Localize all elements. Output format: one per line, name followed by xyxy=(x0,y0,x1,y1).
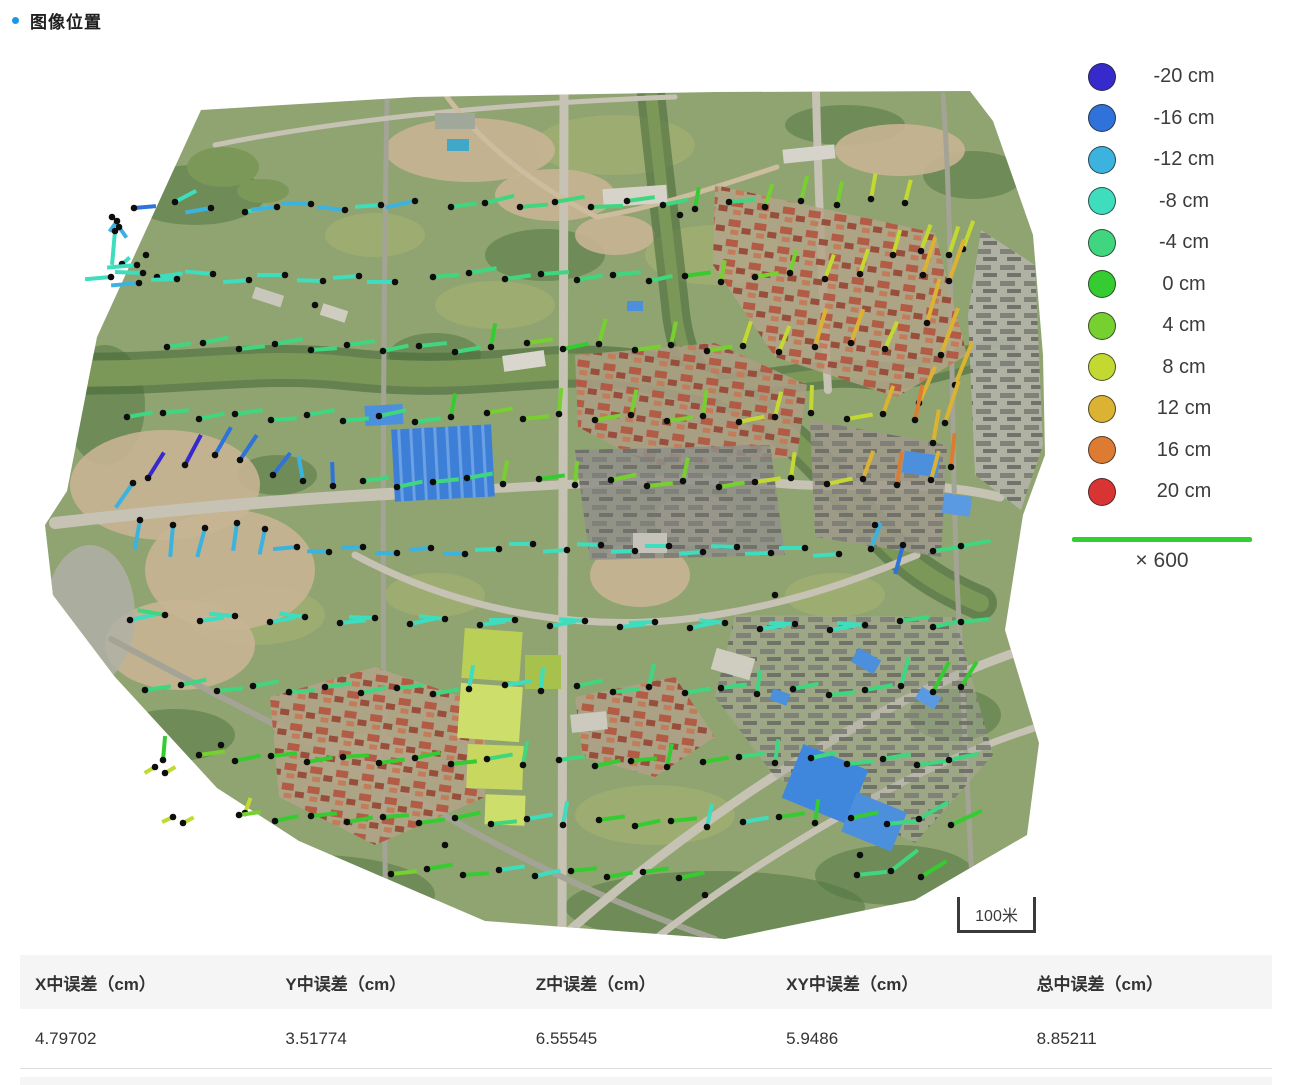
camera-position-dot xyxy=(388,871,395,878)
camera-position-dot xyxy=(442,616,449,623)
camera-position-dot xyxy=(322,684,329,691)
camera-position-dot xyxy=(340,418,347,425)
camera-position-dot xyxy=(170,522,177,529)
camera-position-dot xyxy=(477,622,484,629)
camera-position-dot xyxy=(716,484,723,491)
legend-color-dot xyxy=(1088,312,1116,340)
vector-scale-line xyxy=(1072,537,1252,542)
legend-row: 0 cm xyxy=(1072,264,1262,306)
camera-position-dot xyxy=(884,821,891,828)
camera-position-dot xyxy=(236,812,243,819)
camera-position-dot xyxy=(860,476,867,483)
camera-position-dot xyxy=(857,271,864,278)
map-scale-bar: 100米 xyxy=(957,897,1036,933)
camera-position-dot xyxy=(262,526,269,533)
camera-position-dot xyxy=(598,542,605,549)
camera-position-dot xyxy=(330,483,337,490)
legend-row: -20 cm xyxy=(1072,56,1262,98)
camera-position-dot xyxy=(702,892,709,899)
camera-position-dot xyxy=(560,822,567,829)
camera-position-dot xyxy=(272,818,279,825)
error-vector-map xyxy=(15,55,1045,940)
camera-position-dot xyxy=(848,340,855,347)
camera-position-dot xyxy=(930,548,937,555)
camera-position-dot xyxy=(826,692,833,699)
camera-position-dot xyxy=(824,481,831,488)
camera-position-dot xyxy=(610,689,617,696)
camera-position-dot xyxy=(304,759,311,766)
camera-position-dot xyxy=(462,551,469,558)
camera-position-dot xyxy=(776,349,783,356)
camera-position-dot xyxy=(237,457,244,464)
camera-position-dot xyxy=(496,546,503,553)
legend-color-dot xyxy=(1088,63,1116,91)
camera-position-dot xyxy=(267,619,274,626)
camera-position-dot xyxy=(460,872,467,879)
camera-position-dot xyxy=(942,420,949,427)
camera-position-dot xyxy=(524,340,531,347)
camera-position-dot xyxy=(114,218,121,225)
camera-position-dot xyxy=(798,198,805,205)
camera-position-dot xyxy=(868,196,875,203)
camera-position-dot xyxy=(652,619,659,626)
camera-position-dot xyxy=(920,272,927,279)
camera-position-dot xyxy=(304,412,311,419)
legend-color-dot xyxy=(1088,353,1116,381)
camera-position-dot xyxy=(802,545,809,552)
camera-position-dot xyxy=(854,872,861,879)
camera-position-dot xyxy=(772,760,779,767)
camera-position-dot xyxy=(700,759,707,766)
camera-position-dot xyxy=(902,200,909,207)
legend-color-dot xyxy=(1088,436,1116,464)
camera-position-dot xyxy=(376,413,383,420)
camera-position-dot xyxy=(380,348,387,355)
camera-position-dot xyxy=(582,618,589,625)
camera-position-dot xyxy=(682,273,689,280)
camera-position-dot xyxy=(704,824,711,831)
camera-position-dot xyxy=(236,346,243,353)
camera-position-dot xyxy=(160,757,167,764)
legend-row: -8 cm xyxy=(1072,181,1262,223)
camera-position-dot xyxy=(344,342,351,349)
camera-position-dot xyxy=(466,686,473,693)
camera-position-dot xyxy=(664,418,671,425)
camera-position-dot xyxy=(617,624,624,631)
legend-label: -16 cm xyxy=(1116,107,1262,130)
stats-column-header: XY中误差（cm） xyxy=(771,955,1021,1009)
camera-position-dot xyxy=(234,520,241,527)
camera-position-dot xyxy=(596,341,603,348)
stats-value: 4.79702 xyxy=(20,1009,270,1068)
camera-position-dot xyxy=(928,477,935,484)
camera-position-dot xyxy=(574,683,581,690)
camera-position-dot xyxy=(564,547,571,554)
camera-position-dot xyxy=(872,522,879,529)
stats-column-header: 总中误差（cm） xyxy=(1022,955,1272,1009)
legend-label: 12 cm xyxy=(1116,397,1262,420)
camera-position-dot xyxy=(646,684,653,691)
stats-header-row: X中误差（cm）Y中误差（cm）Z中误差（cm）XY中误差（cm）总中误差（cm… xyxy=(20,955,1272,1009)
camera-position-dot xyxy=(752,274,759,281)
camera-position-dot xyxy=(930,624,937,631)
legend-label: 20 cm xyxy=(1116,480,1262,503)
camera-position-dot xyxy=(124,414,131,421)
camera-position-dot xyxy=(512,617,519,624)
camera-position-dot xyxy=(676,875,683,882)
camera-position-dot xyxy=(536,476,543,483)
aerial-imagery xyxy=(15,55,1045,940)
stats-value-row: 4.797023.517746.555455.94868.85211 xyxy=(20,1009,1272,1069)
camera-position-dot xyxy=(218,742,225,749)
camera-position-dot xyxy=(268,417,275,424)
camera-position-dot xyxy=(145,475,152,482)
camera-position-dot xyxy=(632,548,639,555)
camera-position-dot xyxy=(142,687,149,694)
camera-position-dot xyxy=(646,278,653,285)
camera-position-dot xyxy=(958,684,965,691)
camera-position-dot xyxy=(538,271,545,278)
legend-color-dot xyxy=(1088,395,1116,423)
legend-entries: -20 cm-16 cm-12 cm-8 cm-4 cm0 cm4 cm8 cm… xyxy=(1072,56,1262,513)
camera-position-dot xyxy=(822,276,829,283)
legend-label: 16 cm xyxy=(1116,439,1262,462)
error-stats-table: X中误差（cm）Y中误差（cm）Z中误差（cm）XY中误差（cm）总中误差（cm… xyxy=(20,955,1272,1069)
camera-position-dot xyxy=(416,820,423,827)
camera-position-dot xyxy=(340,754,347,761)
camera-position-dot xyxy=(308,347,315,354)
camera-position-dot xyxy=(448,414,455,421)
camera-position-dot xyxy=(358,690,365,697)
camera-position-dot xyxy=(547,623,554,630)
camera-position-dot xyxy=(178,682,185,689)
camera-position-dot xyxy=(592,763,599,770)
list-bullet-icon xyxy=(12,17,19,24)
camera-position-dot xyxy=(342,207,349,214)
camera-position-dot xyxy=(127,617,134,624)
camera-position-dot xyxy=(164,344,171,351)
stats-value: 8.85211 xyxy=(1022,1009,1272,1068)
camera-position-dot xyxy=(416,343,423,350)
camera-position-dot xyxy=(734,544,741,551)
camera-position-dot xyxy=(530,541,537,548)
camera-position-dot xyxy=(898,683,905,690)
camera-position-dot xyxy=(232,411,239,418)
legend-row: 4 cm xyxy=(1072,305,1262,347)
legend-label: 4 cm xyxy=(1116,314,1262,337)
camera-position-dot xyxy=(344,819,351,826)
camera-position-dot xyxy=(212,452,219,459)
stats-column-header: Y中误差（cm） xyxy=(270,955,520,1009)
legend-row: 12 cm xyxy=(1072,388,1262,430)
camera-position-dot xyxy=(628,758,635,765)
camera-position-dot xyxy=(692,206,699,213)
camera-position-dot xyxy=(834,202,841,209)
camera-position-dot xyxy=(136,280,143,287)
camera-position-dot xyxy=(482,200,489,207)
camera-position-dot xyxy=(664,764,671,771)
camera-position-dot xyxy=(812,820,819,827)
camera-position-dot xyxy=(430,479,437,486)
stats-value: 6.55545 xyxy=(521,1009,771,1068)
camera-position-dot xyxy=(131,205,138,212)
camera-position-dot xyxy=(704,348,711,355)
camera-position-dot xyxy=(808,410,815,417)
camera-position-dot xyxy=(140,270,147,277)
camera-position-dot xyxy=(946,252,953,259)
camera-position-dot xyxy=(916,816,923,823)
camera-position-dot xyxy=(762,204,769,211)
legend-label: -4 cm xyxy=(1116,231,1262,254)
camera-position-dot xyxy=(282,272,289,279)
camera-position-dot xyxy=(938,352,945,359)
camera-position-dot xyxy=(776,814,783,821)
stats-value: 5.9486 xyxy=(771,1009,1021,1068)
camera-position-dot xyxy=(948,464,955,471)
camera-position-dot xyxy=(162,770,169,777)
stats-column-header: Z中误差（cm） xyxy=(521,955,771,1009)
camera-position-dot xyxy=(312,302,319,309)
camera-position-dot xyxy=(844,761,851,768)
camera-position-dot xyxy=(130,480,137,487)
legend-label: -20 cm xyxy=(1116,65,1262,88)
camera-position-dot xyxy=(857,852,864,859)
camera-position-dot xyxy=(520,416,527,423)
camera-position-dot xyxy=(687,625,694,632)
camera-position-dot xyxy=(930,689,937,696)
camera-position-dot xyxy=(412,419,419,426)
camera-position-dot xyxy=(568,868,575,875)
camera-position-dot xyxy=(430,691,437,698)
camera-position-dot xyxy=(412,755,419,762)
camera-position-dot xyxy=(308,201,315,208)
camera-position-dot xyxy=(394,484,401,491)
camera-position-dot xyxy=(452,349,459,356)
camera-position-dot xyxy=(182,462,189,469)
camera-position-dot xyxy=(930,440,937,447)
camera-position-dot xyxy=(326,549,333,556)
camera-position-dot xyxy=(143,252,150,259)
page-title: 图像位置 xyxy=(30,8,102,33)
camera-position-dot xyxy=(300,478,307,485)
camera-position-dot xyxy=(682,690,689,697)
camera-position-dot xyxy=(174,276,181,283)
camera-position-dot xyxy=(560,346,567,353)
vector-scale-label: × 600 xyxy=(1072,549,1252,573)
camera-position-dot xyxy=(214,688,221,695)
camera-position-dot xyxy=(464,475,471,482)
camera-position-dot xyxy=(958,543,965,550)
camera-position-dot xyxy=(376,760,383,767)
camera-position-dot xyxy=(592,417,599,424)
camera-position-dot xyxy=(197,618,204,625)
camera-position-dot xyxy=(448,761,455,768)
camera-position-dot xyxy=(556,411,563,418)
camera-position-dot xyxy=(844,416,851,423)
camera-position-dot xyxy=(827,627,834,634)
camera-position-dot xyxy=(488,344,495,351)
camera-position-dot xyxy=(880,756,887,763)
camera-position-dot xyxy=(668,818,675,825)
next-row-strip xyxy=(20,1077,1272,1085)
camera-position-dot xyxy=(644,483,651,490)
camera-position-dot xyxy=(718,279,725,286)
camera-position-dot xyxy=(808,755,815,762)
camera-position-dot xyxy=(752,479,759,486)
camera-position-dot xyxy=(918,248,925,255)
camera-position-dot xyxy=(196,752,203,759)
stats-value: 3.51774 xyxy=(270,1009,520,1068)
camera-position-dot xyxy=(918,874,925,881)
camera-position-dot xyxy=(488,821,495,828)
orthophoto-map: 100米 xyxy=(15,55,1045,940)
camera-position-dot xyxy=(500,481,507,488)
camera-position-dot xyxy=(202,525,209,532)
camera-position-dot xyxy=(740,819,747,826)
camera-position-dot xyxy=(700,549,707,556)
camera-position-dot xyxy=(208,205,215,212)
camera-position-dot xyxy=(137,517,144,524)
legend-label: -8 cm xyxy=(1116,190,1262,213)
legend-color-dot xyxy=(1088,187,1116,215)
camera-position-dot xyxy=(740,343,747,350)
camera-position-dot xyxy=(428,545,435,552)
camera-position-dot xyxy=(787,270,794,277)
camera-position-dot xyxy=(868,546,875,553)
legend-row: 20 cm xyxy=(1072,471,1262,513)
camera-position-dot xyxy=(442,842,449,849)
camera-position-dot xyxy=(946,278,953,285)
camera-position-dot xyxy=(862,687,869,694)
legend-row: 8 cm xyxy=(1072,347,1262,389)
camera-position-dot xyxy=(484,410,491,417)
camera-position-dot xyxy=(200,340,207,347)
report-page: 图像位置 xyxy=(0,0,1292,1085)
camera-position-dot xyxy=(232,758,239,765)
camera-position-dot xyxy=(900,542,907,549)
camera-position-dot xyxy=(574,277,581,284)
camera-position-dot xyxy=(302,614,309,621)
camera-position-dot xyxy=(268,753,275,760)
camera-position-dot xyxy=(660,202,667,209)
camera-position-dot xyxy=(596,817,603,824)
camera-position-dot xyxy=(572,482,579,489)
legend-color-dot xyxy=(1088,104,1116,132)
camera-position-dot xyxy=(502,682,509,689)
camera-position-dot xyxy=(882,346,889,353)
camera-position-dot xyxy=(162,612,169,619)
camera-position-dot xyxy=(862,622,869,629)
camera-position-dot xyxy=(484,756,491,763)
camera-position-dot xyxy=(924,320,931,327)
camera-position-dot xyxy=(466,270,473,277)
camera-position-dot xyxy=(180,820,187,827)
camera-position-dot xyxy=(520,762,527,769)
camera-position-dot xyxy=(502,276,509,283)
camera-position-dot xyxy=(412,198,419,205)
camera-position-dot xyxy=(718,685,725,692)
camera-position-dot xyxy=(772,414,779,421)
camera-position-dot xyxy=(172,199,179,206)
camera-position-dot xyxy=(890,252,897,259)
camera-position-dot xyxy=(736,754,743,761)
camera-position-dot xyxy=(754,691,761,698)
camera-position-dot xyxy=(772,592,779,599)
legend-color-dot xyxy=(1088,270,1116,298)
camera-position-dot xyxy=(788,475,795,482)
camera-position-dot xyxy=(552,199,559,206)
camera-position-dot xyxy=(632,347,639,354)
section-title-row: 图像位置 xyxy=(12,8,102,33)
camera-position-dot xyxy=(610,272,617,279)
camera-position-dot xyxy=(210,271,217,278)
legend-row: -12 cm xyxy=(1072,139,1262,181)
camera-position-dot xyxy=(372,615,379,622)
stats-column-header: X中误差（cm） xyxy=(20,955,270,1009)
camera-position-dot xyxy=(624,198,631,205)
camera-position-dot xyxy=(274,204,281,211)
camera-position-dot xyxy=(677,212,684,219)
camera-position-dot xyxy=(246,277,253,284)
camera-position-dot xyxy=(232,613,239,620)
camera-position-dot xyxy=(700,413,707,420)
map-legend: -20 cm-16 cm-12 cm-8 cm-4 cm0 cm4 cm8 cm… xyxy=(1072,56,1262,573)
camera-position-dot xyxy=(722,620,729,627)
camera-position-dot xyxy=(668,342,675,349)
camera-position-dot xyxy=(604,874,611,881)
camera-position-dot xyxy=(452,815,459,822)
camera-position-dot xyxy=(270,472,277,479)
camera-position-dot xyxy=(836,551,843,558)
legend-color-dot xyxy=(1088,146,1116,174)
camera-position-dot xyxy=(666,543,673,550)
legend-label: 0 cm xyxy=(1116,273,1262,296)
camera-position-dot xyxy=(392,279,399,286)
camera-position-dot xyxy=(632,823,639,830)
camera-position-dot xyxy=(407,621,414,628)
camera-position-dot xyxy=(556,757,563,764)
camera-position-dot xyxy=(378,202,385,209)
camera-position-dot xyxy=(496,867,503,874)
legend-row: -4 cm xyxy=(1072,222,1262,264)
camera-position-dot xyxy=(152,764,159,771)
camera-position-dot xyxy=(538,688,545,695)
camera-position-dot xyxy=(517,204,524,211)
camera-position-dot xyxy=(112,228,119,235)
camera-position-dot xyxy=(394,550,401,557)
camera-position-dot xyxy=(608,477,615,484)
camera-position-dot xyxy=(134,262,141,269)
camera-position-dot xyxy=(250,683,257,690)
camera-position-dot xyxy=(242,209,249,216)
camera-position-dot xyxy=(108,274,115,281)
camera-position-dot xyxy=(308,813,315,820)
camera-position-dot xyxy=(848,815,855,822)
legend-label: 8 cm xyxy=(1116,356,1262,379)
camera-position-dot xyxy=(680,478,687,485)
camera-position-dot xyxy=(888,868,895,875)
scale-bar-label: 100米 xyxy=(975,902,1018,926)
camera-position-dot xyxy=(424,866,431,873)
camera-position-dot xyxy=(320,278,327,285)
camera-position-dot xyxy=(286,689,293,696)
camera-position-dot xyxy=(736,419,743,426)
camera-position-dot xyxy=(356,273,363,280)
camera-position-dot xyxy=(430,274,437,281)
camera-position-dot xyxy=(160,410,167,417)
camera-position-dot xyxy=(628,412,635,419)
legend-color-dot xyxy=(1088,229,1116,257)
